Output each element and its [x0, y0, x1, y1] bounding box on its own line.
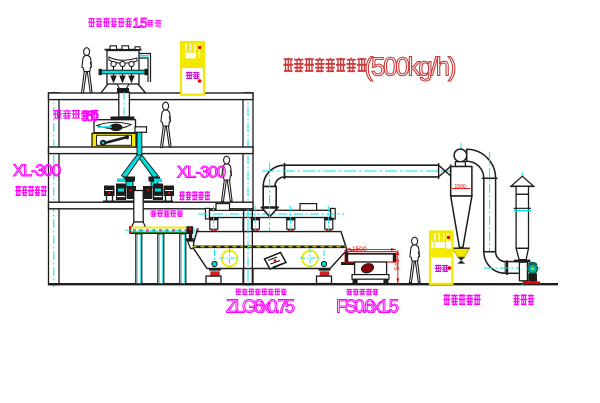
svg-text:545: 545: [394, 259, 401, 270]
svg-text:ZLG6x0.75: ZLG6x0.75: [226, 296, 295, 317]
svg-text:XL-300: XL-300: [13, 162, 61, 180]
svg-text:1.5: 1.5: [133, 16, 148, 31]
svg-text:FS0.6x1.5: FS0.6x1.5: [336, 296, 399, 317]
svg-text:350: 350: [81, 108, 99, 124]
svg-text:(500kg/h): (500kg/h): [365, 54, 457, 82]
svg-text:XL-300: XL-300: [177, 164, 226, 182]
